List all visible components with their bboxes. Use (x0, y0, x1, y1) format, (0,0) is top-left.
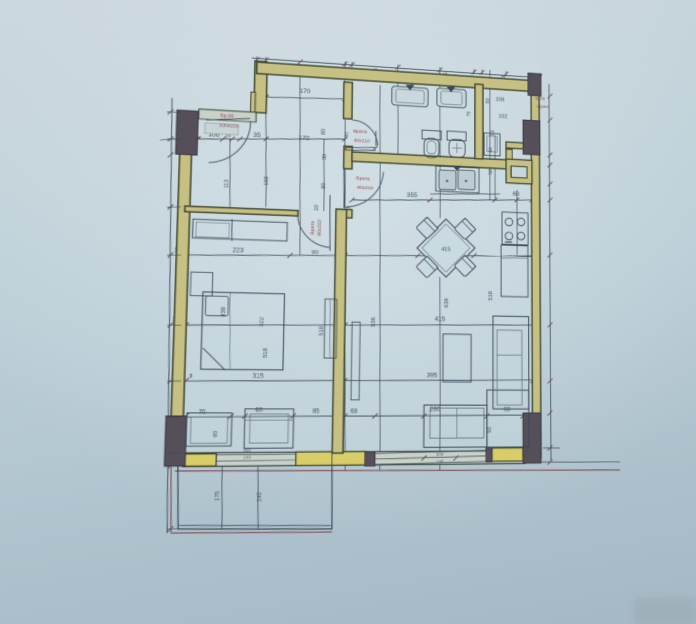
svg-text:гр.50: гр.50 (535, 96, 545, 102)
svg-text:260: 260 (430, 406, 441, 413)
svg-text:395: 395 (427, 372, 438, 379)
svg-text:108: 108 (495, 96, 504, 103)
svg-text:10: 10 (314, 204, 320, 211)
svg-text:322: 322 (258, 316, 265, 327)
svg-text:60: 60 (513, 191, 520, 198)
svg-text:70: 70 (466, 111, 471, 117)
svg-text:102: 102 (498, 113, 507, 120)
svg-text:140: 140 (436, 459, 444, 464)
svg-text:35: 35 (253, 132, 261, 139)
svg-text:50: 50 (485, 98, 490, 104)
svg-text:щранг: щранг (537, 105, 549, 110)
svg-text:518: 518 (318, 326, 325, 336)
svg-text:518: 518 (488, 291, 494, 301)
svg-text:360: 360 (243, 448, 251, 453)
svg-text:315: 315 (252, 373, 264, 380)
svg-text:170: 170 (300, 88, 311, 95)
svg-text:50: 50 (488, 169, 493, 175)
svg-text:85: 85 (313, 408, 320, 415)
svg-text:355: 355 (407, 192, 418, 199)
svg-text:30: 30 (322, 153, 328, 160)
svg-text:Врата: Врата (353, 129, 367, 135)
svg-text:50: 50 (487, 427, 492, 433)
svg-text:90: 90 (312, 249, 319, 256)
svg-text:40: 40 (344, 132, 350, 138)
svg-text:90: 90 (321, 182, 327, 189)
svg-text:113: 113 (224, 179, 230, 189)
svg-text:140: 140 (243, 455, 251, 460)
svg-text:60: 60 (213, 431, 219, 437)
svg-text:90x210: 90x210 (357, 185, 373, 191)
svg-text:175: 175 (215, 490, 221, 501)
svg-text:60: 60 (255, 407, 263, 414)
svg-text:53: 53 (490, 130, 495, 136)
svg-text:80: 80 (321, 128, 327, 135)
svg-text:90x210: 90x210 (354, 138, 370, 144)
svg-text:168: 168 (264, 176, 270, 186)
svg-text:415: 415 (441, 246, 451, 253)
svg-text:140: 140 (257, 491, 263, 502)
svg-text:536: 536 (370, 317, 377, 327)
svg-text:8: 8 (189, 374, 192, 380)
svg-text:Врата: Врата (310, 221, 316, 235)
svg-text:68: 68 (504, 406, 511, 413)
svg-text:518: 518 (262, 347, 269, 358)
svg-text:638: 638 (443, 298, 449, 308)
svg-text:223: 223 (232, 247, 244, 254)
svg-text:90x210: 90x210 (317, 220, 323, 236)
svg-text:200: 200 (436, 452, 444, 457)
svg-text:68: 68 (351, 408, 358, 415)
svg-text:Врата: Врата (356, 176, 370, 182)
svg-text:100x210: 100x210 (219, 123, 239, 130)
svg-text:Вр.90: Вр.90 (220, 113, 234, 119)
svg-text:438: 438 (220, 306, 227, 317)
